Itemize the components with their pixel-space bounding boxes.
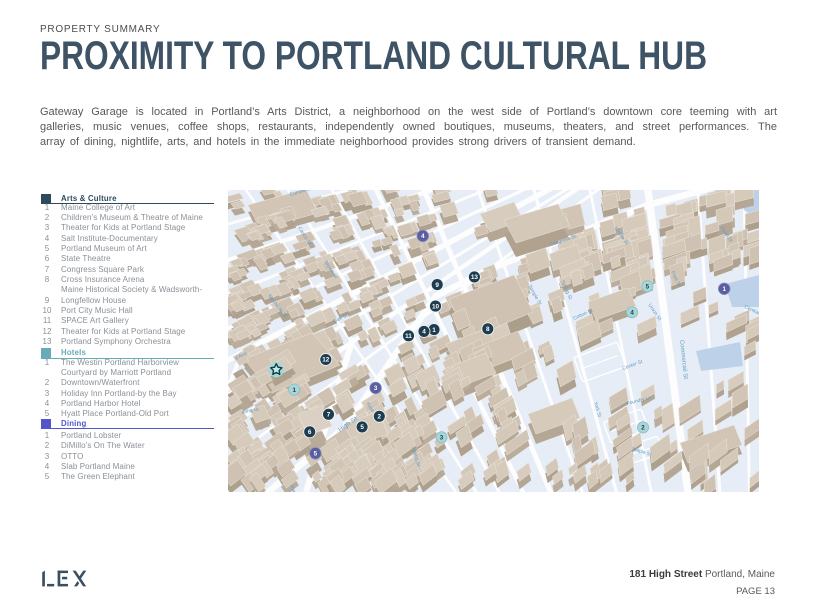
svg-text:2: 2 bbox=[641, 425, 645, 432]
svg-text:7: 7 bbox=[327, 412, 331, 419]
svg-text:1: 1 bbox=[432, 327, 436, 334]
svg-text:1: 1 bbox=[292, 387, 296, 394]
svg-text:4: 4 bbox=[630, 309, 634, 316]
svg-text:5: 5 bbox=[360, 424, 364, 431]
svg-text:4: 4 bbox=[422, 329, 426, 336]
svg-text:2: 2 bbox=[378, 414, 382, 421]
svg-text:3: 3 bbox=[440, 435, 444, 442]
svg-text:3: 3 bbox=[374, 385, 378, 392]
svg-text:10: 10 bbox=[432, 303, 440, 310]
svg-text:5: 5 bbox=[314, 451, 318, 458]
svg-text:12: 12 bbox=[322, 357, 330, 364]
svg-text:6: 6 bbox=[308, 429, 312, 436]
svg-text:5: 5 bbox=[646, 284, 650, 291]
svg-text:4: 4 bbox=[421, 233, 425, 240]
svg-text:8: 8 bbox=[486, 326, 490, 333]
svg-text:13: 13 bbox=[471, 274, 479, 281]
svg-text:11: 11 bbox=[405, 333, 412, 340]
svg-text:9: 9 bbox=[435, 282, 439, 289]
svg-text:1: 1 bbox=[722, 286, 726, 293]
